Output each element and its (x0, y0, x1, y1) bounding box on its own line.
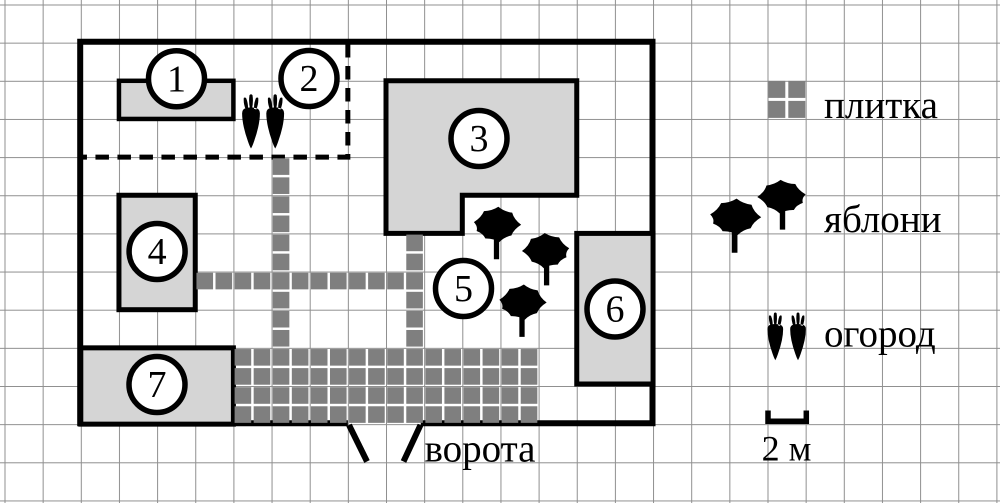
svg-text:2 м: 2 м (762, 428, 812, 468)
svg-text:огород: огород (824, 313, 936, 356)
svg-text:4: 4 (148, 231, 167, 273)
svg-text:5: 5 (454, 268, 473, 310)
svg-text:плитка: плитка (824, 84, 938, 127)
svg-text:2: 2 (300, 58, 319, 100)
svg-text:яблони: яблони (824, 198, 942, 241)
svg-text:ворота: ворота (425, 428, 536, 471)
svg-text:1: 1 (167, 59, 186, 101)
svg-text:7: 7 (148, 364, 167, 406)
svg-text:6: 6 (606, 289, 625, 331)
svg-text:3: 3 (470, 118, 489, 160)
